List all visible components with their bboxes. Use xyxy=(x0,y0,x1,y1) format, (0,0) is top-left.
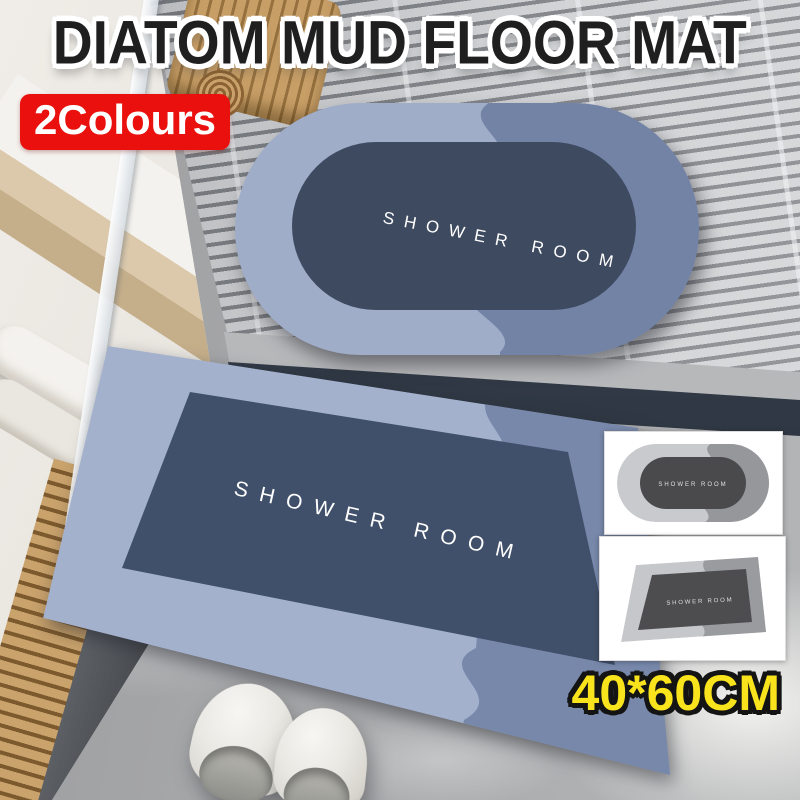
size-label-text: 40*60CM xyxy=(572,664,780,722)
thumbnail-rect-variant: SHOWER ROOM xyxy=(599,536,786,661)
thumb-oval-label: SHOWER ROOM xyxy=(658,482,727,488)
page-title-text: DIATOM MUD FLOOR MAT xyxy=(53,7,747,78)
thumb-rect-mat: SHOWER ROOM xyxy=(608,545,778,653)
thumb-oval-mat: SHOWER ROOM xyxy=(614,439,774,527)
slipper-right xyxy=(267,704,372,800)
colours-badge: 2Colours xyxy=(20,94,230,150)
product-image: SHOWER ROOM SHOWER ROOM xyxy=(0,0,800,800)
colours-badge-label: 2Colours xyxy=(34,96,216,143)
thumbnail-oval-variant: SHOWER ROOM xyxy=(604,431,783,535)
size-label: 40*60CM xyxy=(572,664,780,722)
oval-mat: SHOWER ROOM xyxy=(232,100,702,358)
page-title: DIATOM MUD FLOOR MAT xyxy=(0,10,800,76)
